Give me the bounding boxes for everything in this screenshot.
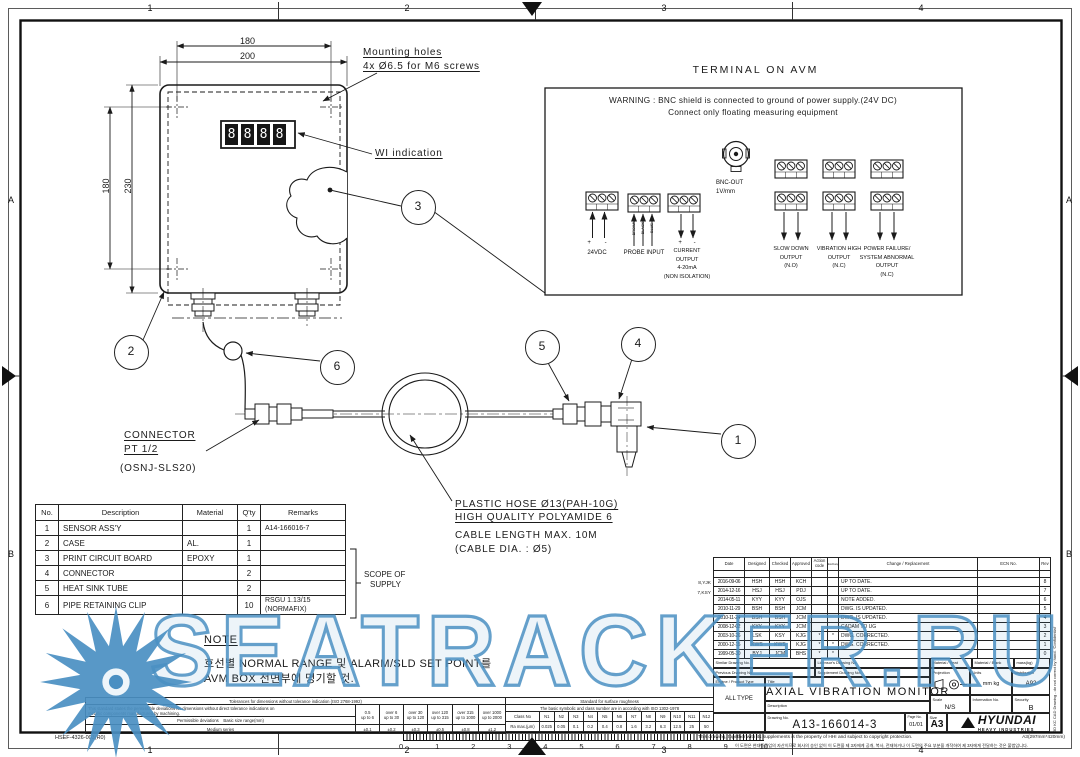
rev-cell-designed: HSJ xyxy=(745,587,770,596)
rev-cell-rev: 4 xyxy=(1040,614,1051,623)
rev-cell-ecn xyxy=(978,605,1040,614)
rev-header-date: Date xyxy=(714,558,745,571)
tolerance-value: ±1.2 xyxy=(479,725,506,734)
revision-row: 2003-10-26 LSK KSY KJG * * DWG. CORRECTE… xyxy=(714,632,1051,641)
parts-row: 5 HEAT SINK TUBE 2 xyxy=(36,581,346,596)
hyundai-logo-cell: HYUNDAI HEAVY INDUSTRIES xyxy=(947,713,1050,732)
rev-cell-exchange xyxy=(828,596,839,605)
ruler-number: 1 xyxy=(435,742,439,751)
rev-cell-approved: KJG xyxy=(791,641,812,650)
display-digit: 8 xyxy=(241,124,254,145)
parts-row: 2 CASE AL. 1 xyxy=(36,536,346,551)
projection-cell: Projection xyxy=(930,668,970,695)
parts-cell-desc: PRINT CIRCUIT BOARD xyxy=(59,551,183,566)
rev-cell-exchange xyxy=(828,614,839,623)
units-label: Units xyxy=(973,670,982,675)
revision-row: 2010-11-24 BSH BSH JCM DWG. IS UPDATED. … xyxy=(714,614,1051,623)
rev-header-checked: Checked xyxy=(770,558,791,571)
parts-cell-rem xyxy=(261,536,346,551)
size-value: A3 xyxy=(928,719,946,730)
tolerance-range: over 6 up to 30 xyxy=(380,705,404,725)
revision-row: 2010-11-29 BSH BSH JCM DWG. IS UPDATED. … xyxy=(714,605,1051,614)
note-line1: 호선별 NORMAL RANGE 및 ALARM/SLD SET POINT를 xyxy=(204,655,491,671)
rev-cell-rev: 5 xyxy=(1040,605,1051,614)
revision-row: 2008-12-02 KYY KYY JCM CADAM TO UG 3 xyxy=(714,623,1051,632)
display-digit: 8 xyxy=(273,124,286,145)
rev-cell-action: * xyxy=(812,641,828,650)
roughness-class: N9 xyxy=(656,712,671,722)
center-mark-triangle xyxy=(518,737,546,755)
class-no-label: Class No xyxy=(506,712,540,722)
scope-bracket xyxy=(350,549,361,618)
range-bottom: up to 315 xyxy=(428,715,452,720)
supplement-drawing-label: Supplement Drawing No. xyxy=(818,670,861,675)
power-line3: OUTPUT xyxy=(852,262,922,271)
drawing-no-value: A13-166014-3 xyxy=(766,719,904,731)
mounting-note-line2: 4x Ø6.5 for M6 screws xyxy=(363,61,480,72)
rev-cell-exchange xyxy=(828,578,839,587)
revision-table: Date Designed Checked Approved Action co… xyxy=(713,557,1051,659)
tolerance-value: ±0.3 xyxy=(404,725,428,734)
similar-drawing-cell: Similar Drawing No. xyxy=(713,658,815,668)
mass-label: mass(kg) xyxy=(1017,660,1033,665)
roughness-value: 6.3 xyxy=(656,722,671,732)
roughness-class: N12 xyxy=(699,712,714,722)
parts-cell-mat xyxy=(183,566,238,581)
units-cell: Units mm kg xyxy=(970,668,1012,695)
roughness-value: 0.1 xyxy=(569,722,584,732)
tolerance-value: ±0.2 xyxy=(380,725,404,734)
rev-cell-change: NOTE ADDED. xyxy=(839,596,978,605)
parts-cell-rem: RSGU 1.13/15 (NORMAFIX) xyxy=(261,596,346,615)
rev-cell-date: 2008-12-02 xyxy=(714,623,745,632)
power-line4: (N.C) xyxy=(852,271,922,280)
current-output-label: CURRENT OUTPUT 4-20mA (NON ISOLATION) xyxy=(655,247,719,281)
projection-symbol-icon xyxy=(934,678,968,691)
margin-note-2: 7,KSY xyxy=(688,589,711,599)
engine-type-cell: Engine / Product Type ALL TYPE xyxy=(713,677,765,713)
connector-label-line2: PT 1/2 xyxy=(124,444,158,455)
revision-row: 2014-05-11 KYY KYY OJS NOTE ADDED. 6 xyxy=(714,596,1051,605)
security-value: B xyxy=(1013,703,1049,712)
rev-cell-ecn xyxy=(978,632,1040,641)
parts-header-desc: Description xyxy=(59,505,183,521)
parts-cell-qty: 1 xyxy=(238,551,261,566)
rev-cell-checked: KSY xyxy=(770,632,791,641)
tolerance-value: ±0.1 xyxy=(356,725,380,734)
mass-cell: mass(kg) xyxy=(1014,658,1050,668)
rev-cell-designed: KWS xyxy=(745,641,770,650)
roughness-value: 0.025 xyxy=(540,722,555,732)
roughness-value: 25 xyxy=(685,722,700,732)
rev-cell-designed: BSH xyxy=(745,614,770,623)
rev-cell-checked: KWS xyxy=(770,641,791,650)
previous-drawing-label: Previous Drawing No. xyxy=(716,670,754,675)
roughness-value: 0.8 xyxy=(612,722,627,732)
similar-drawing-label: Similar Drawing No. xyxy=(716,660,750,665)
rev-header-ecn: ECN No. xyxy=(978,558,1040,571)
parts-cell-no: 1 xyxy=(36,521,59,536)
rev-cell-checked: BSH xyxy=(770,614,791,623)
engine-type-label: Engine / Product Type xyxy=(716,679,764,684)
rev-header-change: Change / Replacement xyxy=(839,558,978,571)
parts-cell-desc: CONNECTOR xyxy=(59,566,183,581)
parts-cell-no: 3 xyxy=(36,551,59,566)
licensor-drawing-label: Licensor's Drawing No. xyxy=(818,660,858,665)
copyright-kr: 이 도면은 현대중공업의 자산이므로 회사의 승인 없이 이 도면을 제 3자에… xyxy=(698,743,1065,749)
sheet-size-note: A3(297mm*420mm) xyxy=(1022,735,1065,740)
rev-cell-designed: BSH xyxy=(745,605,770,614)
scale-cell: Scale N/S xyxy=(930,695,970,713)
zone-top-3: 3 xyxy=(654,3,674,13)
zone-top-1: 1 xyxy=(140,3,160,13)
rev-cell-designed: KYY xyxy=(745,596,770,605)
balloon-4: 4 xyxy=(621,327,656,362)
balloon-2: 2 xyxy=(114,335,149,370)
power-line2: SYSTEM ABNORMAL xyxy=(852,254,922,263)
rev-cell-exchange xyxy=(828,623,839,632)
roughness-class: N10 xyxy=(670,712,685,722)
zone-top-2: 2 xyxy=(397,3,417,13)
ruler-number: 3 xyxy=(507,742,511,751)
rev-cell-exchange: * xyxy=(828,641,839,650)
tolerance-range: over 30 up to 120 xyxy=(404,705,428,725)
parts-cell-mat: EPOXY xyxy=(183,551,238,566)
engine-type-value: ALL TYPE xyxy=(714,696,764,702)
rev-cell-checked: KYY xyxy=(770,596,791,605)
information-no-label: Information No. xyxy=(973,697,1000,702)
hose-label-line2: HIGH QUALITY POLYAMIDE 6 xyxy=(455,512,613,523)
probe-wire-black: BLACK xyxy=(641,214,645,242)
units-value: mm kg xyxy=(971,681,1011,687)
rev-cell-action xyxy=(812,605,828,614)
scope-line1: SCOPE OF xyxy=(364,570,405,580)
cable-label-line1: CABLE LENGTH MAX. 10M xyxy=(455,530,597,541)
zone-top-4: 4 xyxy=(911,3,931,13)
dim-outer-width: 200 xyxy=(240,51,255,61)
display-digit: 8 xyxy=(257,124,270,145)
roughness-class: N3 xyxy=(569,712,584,722)
roughness-class: N4 xyxy=(583,712,598,722)
parts-header-qty: Q'ty xyxy=(238,505,261,521)
range-bottom: up to 6 xyxy=(356,715,379,720)
revision-row: 2016-09-06 HSH HSH KCH UP TO DATE. 8 xyxy=(714,578,1051,587)
rev-cell-ecn xyxy=(978,596,1040,605)
roughness-class: N6 xyxy=(612,712,627,722)
licensor-drawing-cell: Licensor's Drawing No. xyxy=(815,658,930,668)
dc24-polarity: + - xyxy=(584,239,610,248)
range-bottom: up to 2000 xyxy=(479,715,505,720)
ruler-number: 0 xyxy=(399,742,403,751)
bnc-sensitivity-label: 1V/mm xyxy=(716,188,735,197)
parts-cell-mat xyxy=(183,581,238,596)
ra-max-label: Ra max.(μm) xyxy=(506,722,540,732)
distribution-cell: Distribution A92 xyxy=(1012,668,1050,695)
parts-cell-no: 2 xyxy=(36,536,59,551)
roughness-class: N2 xyxy=(554,712,569,722)
rev-cell-approved: KJG xyxy=(791,632,812,641)
avm-enclosure-view xyxy=(104,41,545,340)
rev-header-rev: Rev xyxy=(1040,558,1051,571)
roughness-subtitle: The basic symbolic and class number are … xyxy=(506,705,714,712)
balloon-1: 1 xyxy=(721,424,756,459)
projection-label: Projection xyxy=(933,670,950,675)
rev-cell-action xyxy=(812,587,828,596)
roughness-table: Standard for surface roughness The basic… xyxy=(505,697,714,732)
drawing-sheet: 1 2 3 4 1 2 3 4 A B A B 180 200 180 230 … xyxy=(0,0,1080,757)
hyundai-logo-text: HYUNDAI xyxy=(978,713,1036,727)
rev-cell-approved: JCM xyxy=(791,605,812,614)
dim-inner-width: 180 xyxy=(240,36,255,46)
rev-cell-action xyxy=(812,614,828,623)
rev-cell-rev: 1 xyxy=(1040,641,1051,650)
rev-cell-date: 2010-11-29 xyxy=(714,605,745,614)
balloon-6: 6 xyxy=(320,350,355,385)
rev-cell-ecn xyxy=(978,587,1040,596)
roughness-value: 0.05 xyxy=(554,722,569,732)
register-marks xyxy=(2,2,1078,386)
rev-header-action: Action code xyxy=(812,558,828,571)
bnc-out-label: BNC-OUT xyxy=(716,179,743,188)
ruler-number: 2 xyxy=(471,742,475,751)
watermark-sun-icon xyxy=(30,606,202,757)
parts-cell-no: 5 xyxy=(36,581,59,596)
zone-left-a: A xyxy=(1,195,21,205)
roughness-value: 0.2 xyxy=(583,722,598,732)
mounting-note-line1: Mounting holes xyxy=(363,47,442,58)
drawing-no-cell: Drawing No. A13-166014-3 xyxy=(765,713,905,732)
rev-cell-date: 2014-12-16 xyxy=(714,587,745,596)
titleblock-empty-cell xyxy=(713,713,765,732)
power-failure-output-label: POWER FAILURE/ SYSTEM ABNORMAL OUTPUT (N… xyxy=(852,245,922,279)
power-line1: POWER FAILURE/ xyxy=(852,245,922,254)
terminal-panel-title: TERMINAL ON AVM xyxy=(638,64,873,76)
rev-header-designed: Designed xyxy=(745,558,770,571)
rev-cell-ecn xyxy=(978,578,1040,587)
roughness-class: N11 xyxy=(685,712,700,722)
ruler-number: 7 xyxy=(651,742,655,751)
rev-cell-change: UP TO DATE. xyxy=(839,587,978,596)
rev-cell-rev: 6 xyxy=(1040,596,1051,605)
description-cell: Description xyxy=(765,701,930,713)
rev-cell-checked: KYY xyxy=(770,623,791,632)
rev-cell-approved: JCM xyxy=(791,614,812,623)
title-label: Title xyxy=(768,679,775,684)
parts-cell-no: 4 xyxy=(36,566,59,581)
rev-cell-change: DWG. CORRECTED. xyxy=(839,641,978,650)
page-no-label: Page No. xyxy=(908,715,922,719)
parts-cell-qty: 1 xyxy=(238,521,261,536)
page-no-cell: Page No. 01/01 xyxy=(905,713,927,732)
information-no-cell: Information No. xyxy=(970,695,1012,713)
drawing-title: AXIAL VIBRATION MONITOR xyxy=(766,686,929,698)
parts-cell-qty: 2 xyxy=(238,566,261,581)
parts-header-mat: Material xyxy=(183,505,238,521)
parts-row: 3 PRINT CIRCUIT BOARD EPOXY 1 xyxy=(36,551,346,566)
current-line1: CURRENT xyxy=(655,247,719,256)
security-cell: Security B xyxy=(1012,695,1050,713)
roughness-value: 50 xyxy=(699,722,714,732)
rev-cell-date: 2003-10-26 xyxy=(714,632,745,641)
rev-cell-checked: HSJ xyxy=(770,587,791,596)
parts-cell-mat xyxy=(183,521,238,536)
range-top: over 1000 xyxy=(479,710,505,715)
parts-row: 1 SENSOR ASS'Y 1 A14-166016-7 xyxy=(36,521,346,536)
current-line4: (NON ISOLATION) xyxy=(655,273,719,282)
roughness-value: 0.4 xyxy=(598,722,613,732)
hyundai-triangle-icon xyxy=(961,717,975,728)
dim-inner-height: 180 xyxy=(101,172,111,200)
rev-cell-action xyxy=(812,623,828,632)
zone-right-b: B xyxy=(1059,549,1079,559)
parts-header-no: No. xyxy=(36,505,59,521)
current-line2: OUTPUT xyxy=(655,256,719,265)
roughness-value: 3.2 xyxy=(641,722,656,732)
rev-cell-change: UP TO DATE. xyxy=(839,578,978,587)
rev-cell-rev: 7 xyxy=(1040,587,1051,596)
margin-note-1: 8,YJK xyxy=(688,579,711,589)
cable-label-line2: (CABLE DIA. : Ø5) xyxy=(455,544,552,555)
balloon-3: 3 xyxy=(401,190,436,225)
rev-cell-designed: HSH xyxy=(745,578,770,587)
terminal-warning-line1: WARNING : BNC shield is connected to gro… xyxy=(551,96,955,105)
copyright-row: This drawing, together with its suppleme… xyxy=(698,735,1065,740)
roughness-class: N1 xyxy=(540,712,555,722)
rev-cell-action xyxy=(812,596,828,605)
connector-label-line1: CONNECTOR xyxy=(124,430,195,441)
display-digit: 8 xyxy=(225,124,238,145)
roughness-class: N5 xyxy=(598,712,613,722)
parts-table: No. Description Material Q'ty Remarks 1 … xyxy=(35,504,346,615)
side-confidential-note: 3D KC CAD Drawing - do not correct by ha… xyxy=(1052,560,1057,732)
rev-cell-approved: KCH xyxy=(791,578,812,587)
rev-cell-exchange: * xyxy=(828,632,839,641)
connector-label-line3: (OSNJ-SLS20) xyxy=(120,463,196,474)
tolerance-range: over 120 up to 315 xyxy=(428,705,453,725)
copyright-en: This drawing, together with its suppleme… xyxy=(698,735,912,740)
rev-header-exchange: Exchangeability xyxy=(828,558,839,571)
rev-cell-checked: BSH xyxy=(770,605,791,614)
wi-indication-label: WI indication xyxy=(375,148,443,159)
tolerance-range: 0.5 up to 6 xyxy=(356,705,380,725)
rev-cell-ecn xyxy=(978,641,1040,650)
parts-header-rem: Remarks xyxy=(261,505,346,521)
rev-cell-rev: 2 xyxy=(1040,632,1051,641)
current-line3: 4-20mA xyxy=(655,264,719,273)
parts-cell-qty: 1 xyxy=(238,536,261,551)
rev-cell-change: DWG. CORRECTED. xyxy=(839,632,978,641)
distribution-value: A92 xyxy=(1013,681,1049,687)
parts-cell-desc: HEAT SINK TUBE xyxy=(59,581,183,596)
material-heat-cell: Material / Heat xyxy=(930,658,972,668)
parts-cell-rem xyxy=(261,581,346,596)
balloon-5: 5 xyxy=(525,330,560,365)
scope-of-supply-label: SCOPE OF SUPPLY xyxy=(364,570,405,590)
rev-cell-checked: HSH xyxy=(770,578,791,587)
tolerance-value: ±0.5 xyxy=(428,725,453,734)
rev-cell-approved: OJS xyxy=(791,596,812,605)
rev-cell-ecn xyxy=(978,623,1040,632)
ruler-number: 6 xyxy=(615,742,619,751)
revision-row: 2014-12-16 HSJ HSJ PDJ UP TO DATE. 7 xyxy=(714,587,1051,596)
parts-cell-rem: A14-166016-7 xyxy=(261,521,346,536)
rev-cell-exchange xyxy=(828,587,839,596)
rev-cell-date: 2000-12-15 xyxy=(714,641,745,650)
zone-right-a: A xyxy=(1059,195,1079,205)
hyundai-logo-subtext: HEAVY INDUSTRIES xyxy=(978,727,1036,732)
probe-wire-blue: BLUE xyxy=(650,214,654,242)
rev-blank-row xyxy=(714,571,1051,578)
tolerance-range: over 1000 up to 2000 xyxy=(479,705,506,725)
range-bottom: up to 120 xyxy=(404,715,427,720)
material-heat-label: Material / Heat xyxy=(933,660,958,665)
page-no-value: 01/01 xyxy=(906,722,926,728)
supplement-drawing-cell: Supplement Drawing No. xyxy=(815,668,930,677)
roughness-title: Standard for surface roughness xyxy=(506,698,714,705)
parts-row: 4 CONNECTOR 2 xyxy=(36,566,346,581)
ruler-number: 5 xyxy=(579,742,583,751)
rev-cell-ecn xyxy=(978,614,1040,623)
rev-cell-change: DWG. IS UPDATED. xyxy=(839,605,978,614)
parts-cell-qty: 2 xyxy=(238,581,261,596)
parts-cell-desc: CASE xyxy=(59,536,183,551)
description-label: Description xyxy=(768,703,787,708)
range-bottom: up to 30 xyxy=(380,715,403,720)
zone-left-b: B xyxy=(1,549,21,559)
rev-cell-action: * xyxy=(812,632,828,641)
range-bottom: up to 1000 xyxy=(453,715,478,720)
rev-cell-date: 2016-09-06 xyxy=(714,578,745,587)
rev-cell-action xyxy=(812,578,828,587)
scale-label: Scale xyxy=(933,697,943,702)
roughness-class: N7 xyxy=(627,712,642,722)
previous-drawing-cell: Previous Drawing No. xyxy=(713,668,815,677)
rev-cell-approved: PDJ xyxy=(791,587,812,596)
parts-cell-rem xyxy=(261,566,346,581)
rev-cell-designed: KYY xyxy=(745,623,770,632)
material-blank-cell: Material / Blank xyxy=(972,658,1014,668)
rev-cell-change: CADAM TO UG xyxy=(839,623,978,632)
rev-header-approved: Approved xyxy=(791,558,812,571)
parts-cell-qty: 10 xyxy=(238,596,261,615)
rev-cell-date: 2010-11-24 xyxy=(714,614,745,623)
material-blank-label: Material / Blank xyxy=(975,660,1002,665)
tolerance-range: over 315 up to 1000 xyxy=(453,705,479,725)
dim-outer-height: 230 xyxy=(123,172,133,200)
note-line2: AVM BOX 전면부에 명기할 것. xyxy=(204,670,354,686)
terminal-warning-line2: Connect only floating measuring equipmen… xyxy=(551,108,955,117)
security-label: Security xyxy=(1015,697,1029,702)
parts-cell-desc: SENSOR ASS'Y xyxy=(59,521,183,536)
parts-cell-mat: AL. xyxy=(183,536,238,551)
rev-cell-rev: 8 xyxy=(1040,578,1051,587)
rev-cell-change: DWG. IS UPDATED. xyxy=(839,614,978,623)
scope-line2: SUPPLY xyxy=(364,580,405,590)
rev-cell-approved: JCM xyxy=(791,623,812,632)
probe-wire-brown: BROWN xyxy=(632,214,636,242)
rev-cell-rev: 3 xyxy=(1040,623,1051,632)
roughness-value: 1.6 xyxy=(627,722,642,732)
hose-label-line1: PLASTIC HOSE Ø13(PAH-10G) xyxy=(455,499,618,510)
parts-cell-rem xyxy=(261,551,346,566)
note-title: NOTE xyxy=(204,634,238,646)
basic-size-range-label: Basic size range(mm) xyxy=(223,718,264,723)
roughness-value: 12.5 xyxy=(670,722,685,732)
scale-value: N/S xyxy=(931,704,969,711)
rev-cell-exchange xyxy=(828,605,839,614)
roughness-class: N8 xyxy=(641,712,656,722)
wi-display: 8888 xyxy=(225,124,286,145)
